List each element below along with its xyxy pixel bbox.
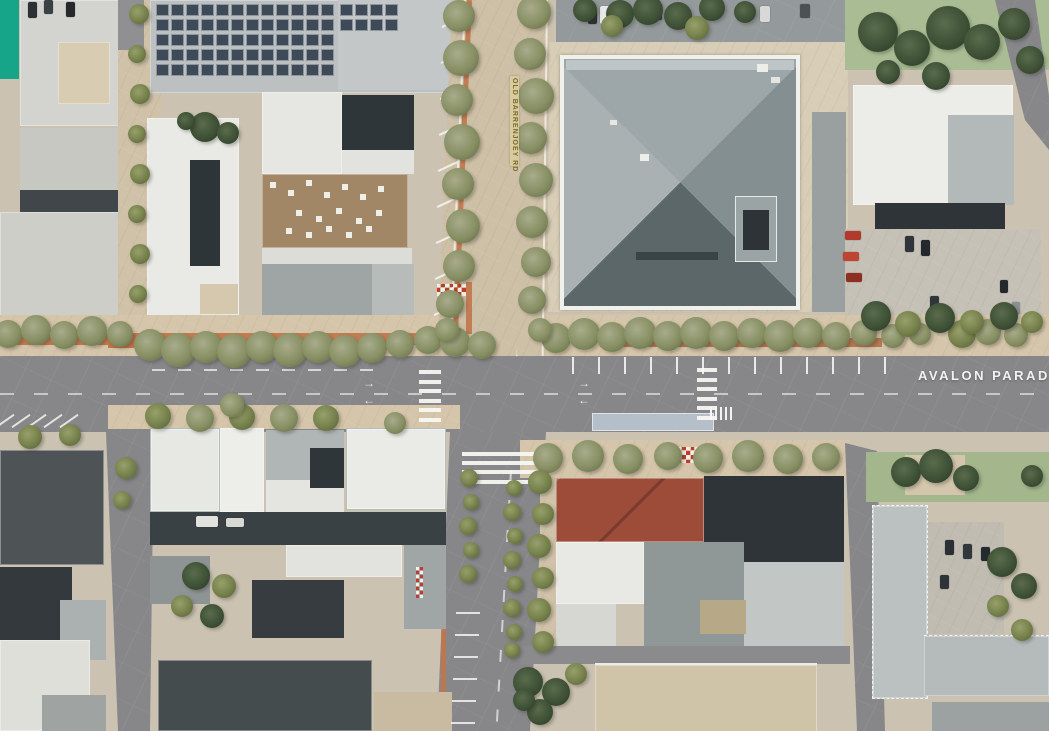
parking-tick <box>650 357 652 374</box>
tree-icon <box>812 443 840 471</box>
checker-tile <box>686 455 689 458</box>
solar-panel <box>276 49 289 61</box>
tree-icon <box>1021 311 1043 333</box>
parking-tick <box>452 700 476 702</box>
tree-icon <box>442 168 474 200</box>
table-dot <box>360 194 366 200</box>
building-roof <box>286 545 402 577</box>
checker-tile <box>682 460 685 463</box>
checker-tile <box>691 447 694 450</box>
red-tile-roof <box>556 478 704 542</box>
table-dot <box>270 182 276 188</box>
cafe-terrace-roof <box>262 174 408 248</box>
lane-arrow-east: → <box>578 377 590 389</box>
solar-panel <box>306 4 319 16</box>
tree-icon <box>528 318 552 342</box>
tree-icon <box>460 469 478 487</box>
parking-tick <box>453 678 477 680</box>
solar-panel <box>261 19 274 31</box>
solar-panel <box>291 19 304 31</box>
tree-icon <box>685 16 709 40</box>
building-roof <box>42 695 106 731</box>
car-icon <box>963 544 972 559</box>
solar-panel <box>306 49 319 61</box>
tree-icon <box>572 440 604 472</box>
checker-tile <box>416 583 419 586</box>
tree-icon <box>565 663 587 685</box>
checker-tile <box>441 284 444 287</box>
parking-tick <box>456 612 480 614</box>
tree-icon <box>130 84 150 104</box>
solar-panel <box>261 4 274 16</box>
shop-roof <box>346 428 446 510</box>
rooftop-unit <box>757 64 768 72</box>
tree-icon <box>601 15 623 37</box>
tree-icon <box>953 465 979 491</box>
street-label-avalon-parade: AVALON PARADE <box>918 368 1049 383</box>
solar-panel <box>246 4 259 16</box>
zebra-stripe <box>419 389 441 393</box>
table-dot <box>366 226 372 232</box>
zebra-stripe <box>462 452 538 456</box>
tree-icon <box>597 322 627 352</box>
tree-icon <box>443 0 475 32</box>
solar-panel <box>201 64 214 76</box>
solar-panel <box>231 49 244 61</box>
table-dot <box>296 210 302 216</box>
table-dot <box>336 208 342 214</box>
solar-panel <box>276 34 289 46</box>
tree-icon <box>514 38 546 70</box>
zebra-stripe <box>419 408 441 412</box>
solar-panel <box>246 49 259 61</box>
solar-panel <box>321 34 334 46</box>
tree-icon <box>998 8 1030 40</box>
tree-icon <box>1011 573 1037 599</box>
solar-panel <box>340 19 353 31</box>
tree-icon <box>1011 619 1033 641</box>
rooftop-unit <box>771 77 780 83</box>
solar-panel <box>306 19 319 31</box>
parking-dash <box>178 369 191 371</box>
parking-tick <box>676 357 678 374</box>
solar-panel <box>231 4 244 16</box>
warehouse-roof <box>158 660 372 731</box>
solar-panel <box>201 49 214 61</box>
tree-icon <box>468 331 496 359</box>
solar-panel <box>171 19 184 31</box>
building-roof <box>556 604 616 650</box>
tree-icon <box>50 321 78 349</box>
teal-accent-swatch <box>0 0 19 79</box>
solar-panel <box>276 19 289 31</box>
parking-dash <box>256 369 269 371</box>
car-icon <box>905 236 914 252</box>
give-way-arrow: ↓ <box>514 346 520 358</box>
tree-icon <box>861 301 891 331</box>
tree-icon <box>212 574 236 598</box>
checker-tile <box>416 591 419 594</box>
tree-icon <box>507 528 523 544</box>
tree-icon <box>506 480 522 496</box>
rear-lane <box>150 512 446 545</box>
zebra-stripe <box>697 406 717 410</box>
zebra-stripe <box>462 461 538 465</box>
building-roof <box>744 562 844 648</box>
tree-icon <box>130 244 150 264</box>
table-dot <box>306 180 312 186</box>
tree-icon <box>764 320 796 352</box>
tree-icon <box>876 60 900 84</box>
rear-lane <box>520 646 850 664</box>
parking-tick <box>858 357 860 374</box>
tree-icon <box>459 565 477 583</box>
car-icon <box>226 518 244 527</box>
tree-icon <box>128 125 146 143</box>
road-centerline <box>0 393 1049 395</box>
checker-tile <box>420 595 423 598</box>
car-icon <box>846 273 862 282</box>
tree-icon <box>145 403 171 429</box>
tree-icon <box>653 321 683 351</box>
building-roof <box>0 212 120 318</box>
tree-icon <box>186 404 214 432</box>
tree-icon <box>217 122 239 144</box>
charcoal-roof <box>875 203 1005 229</box>
solar-panel <box>216 34 229 46</box>
car-icon <box>196 516 218 527</box>
tree-icon <box>130 164 150 184</box>
tree-icon <box>516 206 548 238</box>
bus-stop-band <box>592 413 714 431</box>
checker-tile <box>416 587 419 590</box>
parking-tick <box>598 357 600 374</box>
solar-panel <box>385 4 398 16</box>
parking-tick <box>806 357 808 374</box>
solar-panel <box>355 19 368 31</box>
solar-panel <box>261 49 274 61</box>
checker-tile <box>686 447 689 450</box>
checker-tile <box>450 284 453 287</box>
parking-dash <box>230 369 243 371</box>
solar-panel <box>261 34 274 46</box>
solar-panel <box>291 4 304 16</box>
tree-icon <box>463 494 479 510</box>
checker-tile <box>682 447 685 450</box>
tree-icon <box>444 124 480 160</box>
car-icon <box>843 252 859 261</box>
tree-icon <box>822 322 850 350</box>
tree-icon <box>115 457 137 479</box>
shop-roof <box>150 428 220 512</box>
kerb-strip-terracotta <box>466 282 472 334</box>
building-roof <box>58 42 110 104</box>
solar-panel <box>186 49 199 61</box>
table-dot <box>286 228 292 234</box>
checker-tile <box>437 284 440 287</box>
tree-icon <box>987 547 1017 577</box>
solar-panel <box>201 19 214 31</box>
tree-icon <box>190 112 220 142</box>
solar-panel <box>246 19 259 31</box>
solar-panel <box>321 64 334 76</box>
building-roof <box>404 545 446 629</box>
solar-panel <box>186 4 199 16</box>
lane-arrow-east: → <box>363 377 375 389</box>
table-dot <box>342 184 348 190</box>
side-lane-east <box>812 112 846 312</box>
building-roof <box>262 248 412 264</box>
car-icon <box>945 540 954 555</box>
zebra-stripe <box>419 399 441 403</box>
checker-tile <box>416 567 419 570</box>
zebra-stripe <box>697 368 717 372</box>
charcoal-roof <box>342 95 414 150</box>
solar-panel <box>261 64 274 76</box>
checker-tile <box>462 292 465 295</box>
tree-icon <box>182 562 210 590</box>
checker-tile <box>682 451 685 454</box>
parking-tick <box>780 357 782 374</box>
solar-panel <box>216 49 229 61</box>
table-dot <box>346 232 352 238</box>
table-dot <box>316 216 322 222</box>
solar-panel <box>321 4 334 16</box>
checker-tile <box>686 451 689 454</box>
solar-panel <box>291 64 304 76</box>
tree-icon <box>129 4 149 24</box>
tree-icon <box>709 321 739 351</box>
solar-panel <box>186 34 199 46</box>
tree-icon <box>177 112 195 130</box>
tree-icon <box>528 470 552 494</box>
solar-panel <box>355 4 368 16</box>
street-label-old-barrenjoey: OLD BARRENJOEY RD <box>510 76 519 166</box>
tree-icon <box>200 604 224 628</box>
parking-tick <box>884 357 886 374</box>
shed-roof <box>700 600 746 634</box>
building-roof <box>262 92 342 174</box>
parking-dash <box>308 369 321 371</box>
supermarket-building <box>560 55 800 310</box>
solar-panel <box>321 49 334 61</box>
checker-tile <box>458 288 461 291</box>
tree-icon <box>329 335 361 367</box>
tree-icon <box>18 425 42 449</box>
solar-panel <box>370 19 383 31</box>
table-dot <box>324 192 330 198</box>
car-icon <box>921 240 930 256</box>
tree-icon <box>270 404 298 432</box>
solar-panel <box>171 49 184 61</box>
solar-panel <box>291 34 304 46</box>
white-building-roof <box>556 542 644 604</box>
tree-icon <box>895 311 921 337</box>
tree-icon <box>435 318 459 342</box>
tree-icon <box>922 62 950 90</box>
building-roof <box>372 264 414 318</box>
tree-icon <box>507 576 523 592</box>
tree-icon <box>925 303 955 333</box>
car-icon <box>44 0 53 14</box>
tree-icon <box>515 122 547 154</box>
charcoal-roof <box>252 580 344 638</box>
checker-tile <box>462 288 465 291</box>
dark-roof-strip <box>190 160 220 266</box>
tree-icon <box>463 542 479 558</box>
tree-icon <box>503 503 521 521</box>
solar-panel <box>156 49 169 61</box>
solar-panel <box>370 4 383 16</box>
solar-panel <box>171 34 184 46</box>
tree-icon <box>737 318 767 348</box>
entry-structure <box>735 196 777 262</box>
checker-tile <box>682 455 685 458</box>
shop-roof <box>220 428 264 512</box>
tree-icon <box>680 317 712 349</box>
parking-tick <box>624 357 626 374</box>
building-roof <box>20 128 120 190</box>
tree-icon <box>443 40 479 76</box>
tree-icon <box>441 84 473 116</box>
checker-tile <box>462 284 465 287</box>
car-icon <box>760 6 770 22</box>
parking-dash <box>334 369 347 371</box>
tree-icon <box>521 247 551 277</box>
tree-icon <box>384 412 406 434</box>
zebra-stripe <box>697 378 717 382</box>
checker-tile <box>416 595 419 598</box>
tree-icon <box>357 333 387 363</box>
tree-icon <box>533 443 563 473</box>
solar-panel <box>216 64 229 76</box>
solar-panel <box>306 34 319 46</box>
tree-icon <box>1021 465 1043 487</box>
parking-tick <box>754 357 756 374</box>
table-dot <box>376 210 382 216</box>
checker-tile <box>437 288 440 291</box>
tree-icon <box>513 689 535 711</box>
tree-icon <box>220 393 244 417</box>
checker-tile <box>416 579 419 582</box>
checker-tile <box>458 284 461 287</box>
tree-icon <box>568 318 600 350</box>
parking-dash <box>282 369 295 371</box>
building-roof <box>374 692 452 731</box>
table-dot <box>356 218 362 224</box>
tree-icon <box>532 503 554 525</box>
parking-dash <box>360 369 373 371</box>
solar-panel <box>186 19 199 31</box>
solar-panel <box>246 64 259 76</box>
building-roof <box>342 150 414 174</box>
zebra-stripe <box>419 418 441 422</box>
tree-icon <box>129 285 147 303</box>
tree-icon <box>960 310 984 334</box>
rooftop-vent-strip <box>636 252 718 260</box>
car-icon <box>1000 280 1008 293</box>
tree-icon <box>59 424 81 446</box>
parking-tick <box>702 357 704 374</box>
tree-icon <box>313 405 339 431</box>
checker-tile <box>445 284 448 287</box>
building-roof <box>0 450 104 565</box>
checker-tile <box>420 587 423 590</box>
checker-tile <box>420 575 423 578</box>
checker-tile <box>416 575 419 578</box>
tree-icon <box>613 444 643 474</box>
long-building-roof <box>595 663 817 731</box>
parking-tick <box>572 357 574 374</box>
solar-panel <box>276 64 289 76</box>
tree-icon <box>503 599 521 617</box>
table-dot <box>326 226 332 232</box>
parking-tick <box>455 634 479 636</box>
tree-icon <box>128 205 146 223</box>
checker-tile <box>420 567 423 570</box>
checker-tile <box>420 583 423 586</box>
solar-panel <box>156 64 169 76</box>
checker-tile <box>416 571 419 574</box>
tree-icon <box>624 317 656 349</box>
charcoal-roof <box>310 448 344 488</box>
zebra-stripe <box>697 416 717 420</box>
tree-icon <box>436 290 464 318</box>
parking-dash <box>152 369 165 371</box>
solar-panel <box>201 34 214 46</box>
solar-panel <box>216 19 229 31</box>
car-icon <box>845 231 861 240</box>
tree-icon <box>773 444 803 474</box>
solar-panel <box>201 4 214 16</box>
building-roof <box>932 702 1049 731</box>
checker-tile <box>420 591 423 594</box>
courtyard <box>200 284 238 314</box>
car-icon <box>940 575 949 589</box>
tree-icon <box>506 624 522 640</box>
solar-panel <box>156 4 169 16</box>
tree-icon <box>518 286 546 314</box>
tree-icon <box>171 595 193 617</box>
tree-icon <box>519 163 553 197</box>
l-building-roof <box>872 505 928 699</box>
tree-icon <box>964 24 1000 60</box>
car-icon <box>28 2 37 18</box>
tree-icon <box>527 598 551 622</box>
tree-icon <box>532 567 554 589</box>
solar-panel <box>385 19 398 31</box>
tree-icon <box>446 209 480 243</box>
tree-icon <box>527 534 551 558</box>
solar-panel <box>246 34 259 46</box>
rooftop-unit <box>640 154 649 161</box>
zebra-stripe <box>697 397 717 401</box>
tree-icon <box>693 443 723 473</box>
parking-tick <box>451 722 475 724</box>
table-dot <box>378 186 384 192</box>
tree-icon <box>386 330 414 358</box>
driveway-gap <box>20 190 120 212</box>
solar-panel <box>156 34 169 46</box>
tree-icon <box>987 595 1009 617</box>
checker-tile <box>420 579 423 582</box>
tree-icon <box>891 457 921 487</box>
tree-icon <box>503 551 521 569</box>
tree-icon <box>518 78 554 114</box>
parking-dash <box>204 369 217 371</box>
solar-panel <box>321 19 334 31</box>
parking-tick <box>454 656 478 658</box>
